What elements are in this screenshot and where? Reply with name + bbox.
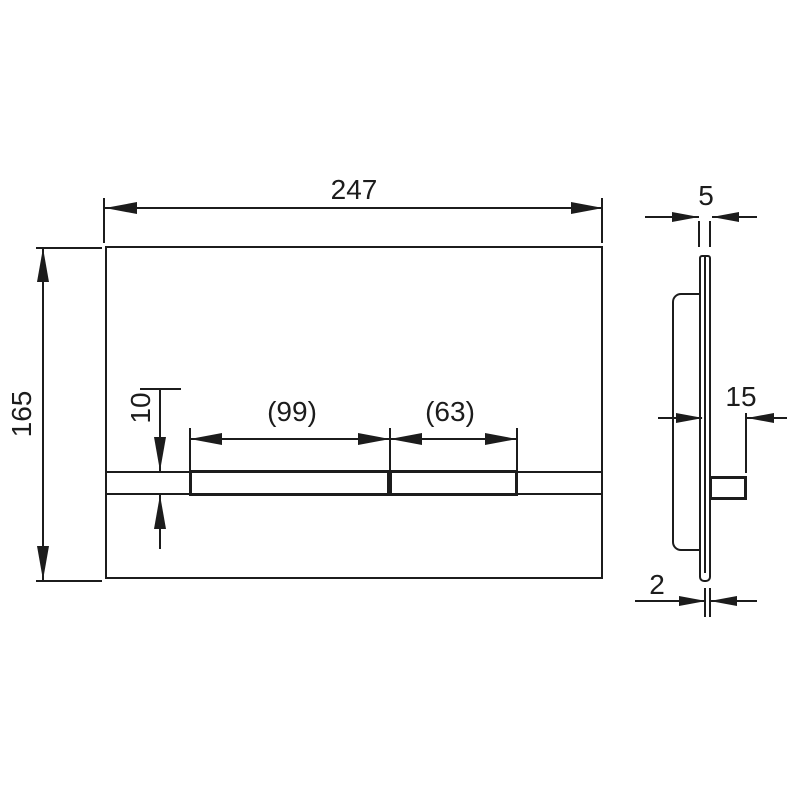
extension-line	[745, 413, 747, 473]
arrowhead-right-icon	[672, 212, 699, 222]
plate-panel-split-line	[704, 257, 706, 573]
extension-line	[704, 588, 706, 617]
extension-line	[36, 580, 102, 582]
extension-line	[601, 198, 603, 243]
arrowhead-right-icon	[485, 433, 517, 445]
dimension-line	[105, 207, 603, 209]
arrowhead-up-icon	[37, 248, 49, 282]
arrowhead-right-icon	[571, 202, 603, 214]
arrowhead-right-icon	[679, 596, 706, 606]
extension-line	[709, 221, 711, 247]
dim-strip-height-label: 10	[127, 392, 155, 423]
small-flush-button	[389, 470, 518, 496]
dimension-line	[190, 438, 517, 440]
extension-line	[36, 247, 102, 249]
plate-outline	[105, 246, 603, 579]
arrowhead-left-icon	[712, 212, 739, 222]
arrowhead-down-icon	[37, 546, 49, 580]
arrowhead-right-icon	[676, 413, 703, 423]
large-flush-button	[189, 470, 390, 496]
dim-button-projection-label: 15	[725, 383, 756, 411]
technical-drawing-canvas: 247 165 10	[0, 0, 800, 800]
button-profile	[709, 476, 747, 500]
arrowhead-right-icon	[358, 433, 390, 445]
arrowhead-left-icon	[190, 433, 222, 445]
arrowhead-left-icon	[710, 596, 737, 606]
dim-large-button-label: (99)	[267, 398, 317, 426]
dim-panel-thickness-label: 2	[649, 571, 665, 599]
arrowhead-up-icon	[154, 495, 166, 529]
extension-line	[698, 221, 700, 247]
extension-line	[103, 198, 105, 243]
arrowhead-down-icon	[154, 437, 166, 471]
dim-thickness-label: 5	[698, 182, 714, 210]
dim-small-button-label: (63)	[425, 398, 475, 426]
dimension-line	[42, 247, 44, 581]
arrowhead-left-icon	[390, 433, 422, 445]
dim-overall-height-label: 165	[8, 391, 36, 438]
dim-overall-width-label: 247	[331, 176, 378, 204]
extension-line	[709, 588, 711, 617]
arrowhead-left-icon	[747, 413, 774, 423]
arrowhead-left-icon	[105, 202, 137, 214]
